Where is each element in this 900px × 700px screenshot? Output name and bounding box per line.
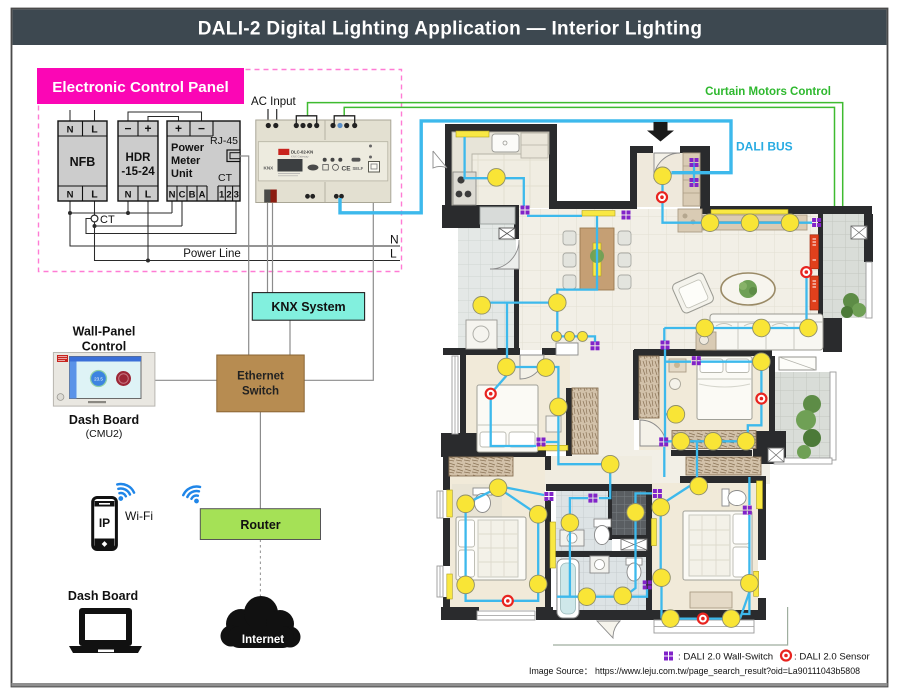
svg-text:B: B bbox=[189, 190, 196, 201]
svg-text:RJ-45: RJ-45 bbox=[210, 135, 238, 147]
svg-text:CT: CT bbox=[218, 172, 233, 184]
svg-text:L: L bbox=[145, 189, 152, 201]
svg-text:SELF: SELF bbox=[353, 166, 364, 171]
svg-text:KNX Gateway: KNX Gateway bbox=[291, 154, 309, 158]
svg-text:Power Line: Power Line bbox=[183, 248, 241, 260]
svg-text:N: N bbox=[67, 190, 74, 201]
svg-text:Router: Router bbox=[240, 518, 280, 532]
svg-text:NFB: NFB bbox=[70, 155, 96, 169]
svg-text:(CMU2): (CMU2) bbox=[86, 428, 123, 440]
svg-text:N: N bbox=[169, 190, 176, 201]
svg-text:DALI-2 Digital Lighting Applic: DALI-2 Digital Lighting Application — In… bbox=[198, 19, 702, 40]
svg-text:+: + bbox=[175, 122, 182, 136]
svg-text:2: 2 bbox=[226, 190, 231, 201]
svg-text:L: L bbox=[91, 124, 98, 136]
svg-text:-15-24: -15-24 bbox=[121, 166, 155, 178]
svg-text:L: L bbox=[91, 189, 98, 201]
svg-text:HDR: HDR bbox=[126, 152, 152, 164]
svg-text:Electronic Control Panel: Electronic Control Panel bbox=[52, 79, 228, 96]
svg-text:3: 3 bbox=[234, 190, 239, 201]
svg-text:CT: CT bbox=[100, 214, 115, 226]
svg-text:Curtain Motors Control: Curtain Motors Control bbox=[705, 86, 831, 98]
svg-text:N: N bbox=[67, 125, 74, 136]
svg-text:Ethernet: Ethernet bbox=[237, 371, 284, 383]
svg-text:23.5: 23.5 bbox=[94, 377, 103, 382]
svg-text:Unit: Unit bbox=[171, 168, 193, 180]
svg-text:N: N bbox=[390, 233, 399, 247]
svg-text:: DALI 2.0 Sensor: : DALI 2.0 Sensor bbox=[794, 652, 871, 663]
svg-text:: DALI 2.0 Wall-Switch: : DALI 2.0 Wall-Switch bbox=[678, 652, 773, 663]
svg-text:Meter: Meter bbox=[171, 155, 201, 167]
svg-text:Dash Board: Dash Board bbox=[69, 413, 139, 427]
svg-text:Internet: Internet bbox=[242, 634, 284, 646]
svg-text:−: − bbox=[124, 122, 131, 136]
svg-text:L: L bbox=[390, 247, 397, 261]
svg-text:C: C bbox=[179, 190, 186, 201]
svg-text:N: N bbox=[125, 190, 132, 201]
svg-text:+: + bbox=[144, 122, 151, 136]
svg-text:KNX System: KNX System bbox=[271, 300, 345, 314]
svg-text:1: 1 bbox=[219, 190, 225, 201]
svg-text:Dash Board: Dash Board bbox=[68, 589, 138, 603]
svg-text:A: A bbox=[199, 190, 206, 201]
svg-text:Wall-Panel: Wall-Panel bbox=[73, 325, 136, 339]
svg-text:KNX: KNX bbox=[264, 166, 275, 171]
svg-text:IP: IP bbox=[99, 516, 110, 530]
svg-text:Wi-Fi: Wi-Fi bbox=[125, 509, 153, 523]
svg-text:Control: Control bbox=[82, 340, 126, 354]
svg-text:DALI BUS: DALI BUS bbox=[736, 140, 793, 154]
svg-text:Image Source： https://www.le: Image Source： https://www.leju.com.tw/pa… bbox=[529, 666, 860, 676]
svg-text:Switch: Switch bbox=[242, 386, 279, 398]
svg-text:−: − bbox=[198, 122, 205, 136]
svg-text:CE: CE bbox=[342, 166, 352, 173]
svg-text:Power: Power bbox=[171, 142, 205, 154]
svg-text:AC Input: AC Input bbox=[251, 96, 297, 108]
